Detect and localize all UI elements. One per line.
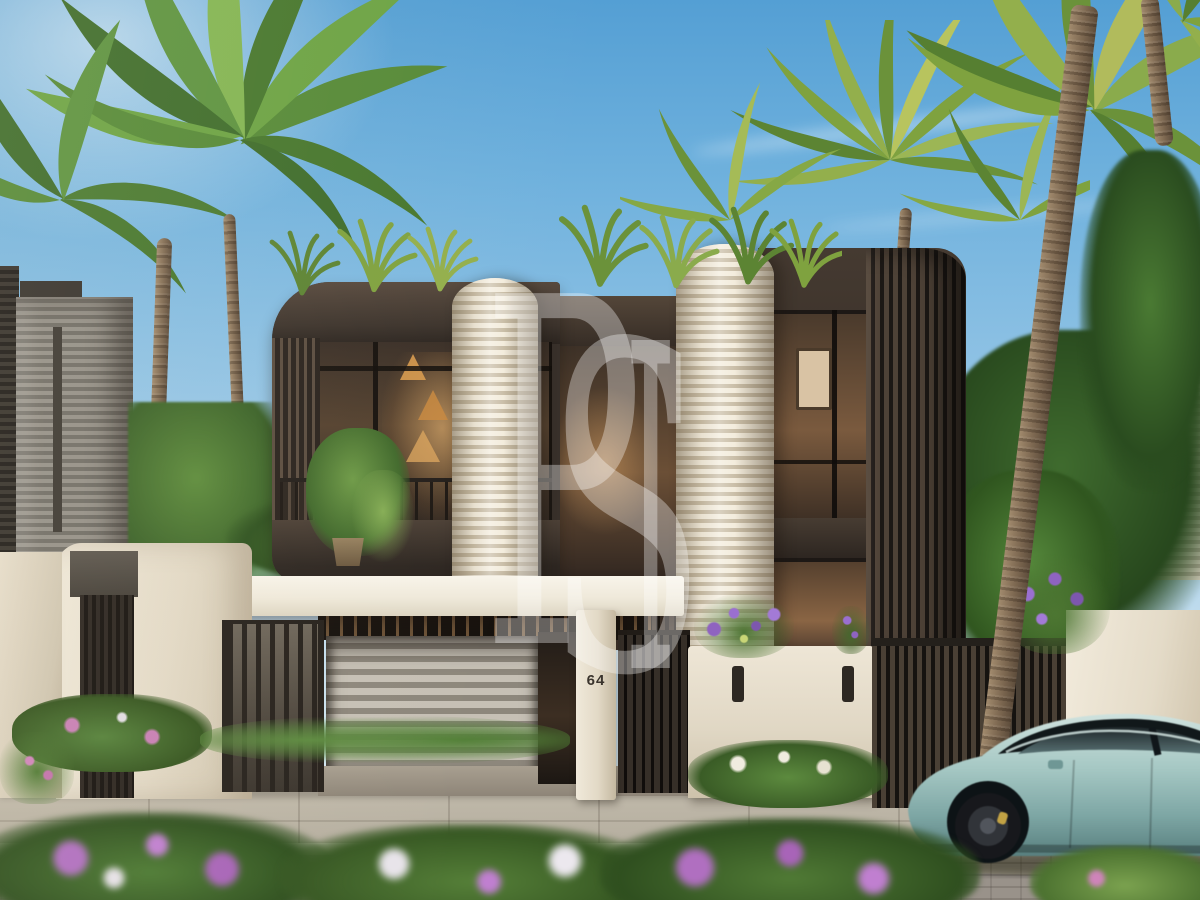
wall-sconce <box>842 666 854 702</box>
purple-flower-cluster <box>832 606 870 654</box>
neighbor-building-left-window-slot <box>53 327 62 532</box>
interior-light-glow <box>550 386 660 536</box>
wall-sconce <box>732 666 744 702</box>
foreground-hedge <box>600 818 980 900</box>
architectural-render: 64 <box>0 0 1200 900</box>
white-flower-shrub <box>688 740 888 808</box>
purple-flower-cluster <box>694 594 794 658</box>
entrance-canopy <box>236 576 684 616</box>
hedge-row <box>200 716 570 764</box>
flower-bed <box>0 732 74 804</box>
villa-right-wing <box>758 248 966 656</box>
gatehouse-roofband <box>70 551 138 597</box>
driveway-gate-right <box>618 630 690 793</box>
rooftop-grasses <box>262 196 842 296</box>
driveway-gate-left <box>222 620 324 792</box>
gate-bars <box>222 620 324 792</box>
car-mirror <box>1048 760 1063 769</box>
slatted-corner-tower <box>866 248 966 656</box>
house-number: 64 <box>576 672 616 689</box>
entry-glass-door <box>538 632 580 784</box>
entrance-pillar: 64 <box>576 610 616 800</box>
garden-foliage <box>1080 150 1200 490</box>
corner-plants <box>1030 846 1200 900</box>
